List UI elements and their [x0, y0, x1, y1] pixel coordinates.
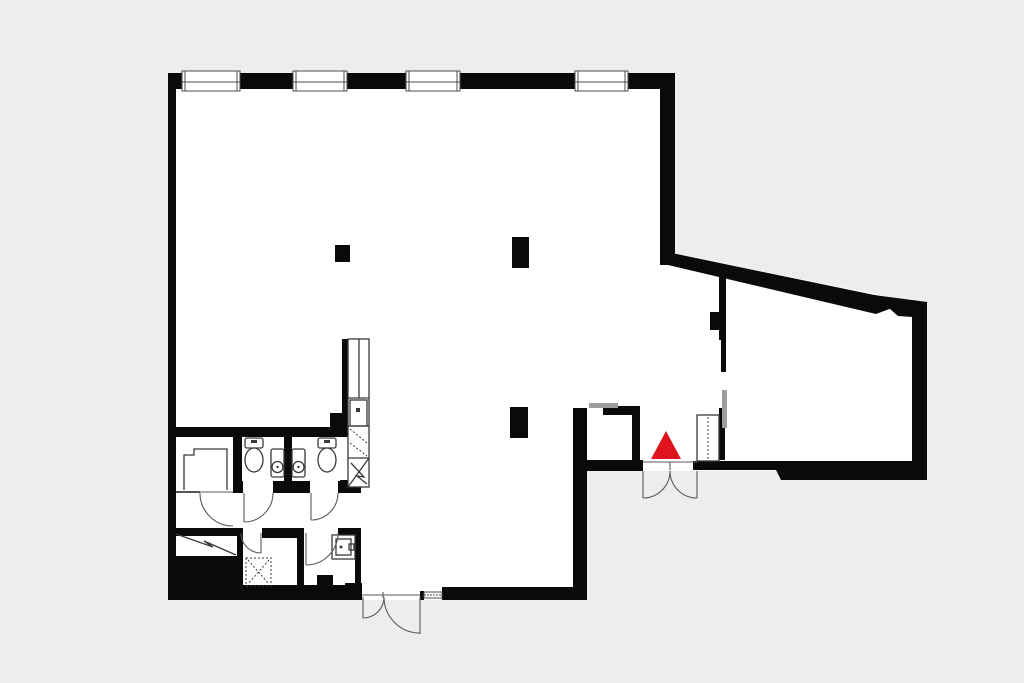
vestibule-cabinet [697, 415, 719, 461]
wall-divider-stub [710, 312, 722, 330]
wall-right-wing-right [912, 302, 927, 480]
window-3 [406, 71, 460, 91]
floor-plan-canvas [0, 0, 1024, 683]
sidelight-window [424, 592, 442, 598]
wash-basin-1 [271, 449, 284, 477]
column-1 [335, 245, 350, 262]
wall-closet-right [632, 408, 640, 462]
wall-left [168, 73, 176, 600]
wash-basin-2 [292, 449, 305, 477]
wall-divider-upper [719, 277, 726, 340]
wall-utility-stub [317, 575, 333, 585]
window-2 [293, 71, 347, 91]
wall-bathroom-top [168, 427, 348, 437]
wall-hall-bottom-seg2 [262, 528, 297, 538]
kitchen-unit [348, 339, 369, 487]
wall-hall-top-pier2 [273, 481, 310, 493]
wall-hall-bottom-seg1 [175, 528, 240, 536]
sliding-door-right-room [722, 390, 727, 428]
window-4 [575, 71, 628, 91]
toilet-1 [245, 438, 263, 472]
wall-utility-divider [297, 528, 304, 585]
building-floor [168, 73, 927, 600]
wall-divider-thin [721, 340, 726, 372]
wall-bottom-band [243, 585, 345, 600]
wall-wc-divider-mid [284, 437, 292, 481]
floor-plan-svg [0, 0, 1024, 683]
wall-hall-top-pier1 [233, 481, 243, 493]
wall-bottom-door-jamb-right [420, 591, 424, 600]
wall-kitchen-step [330, 413, 348, 427]
wall-right-upper [660, 73, 675, 265]
toilet-2 [318, 438, 336, 472]
sliding-door-closet [589, 403, 618, 408]
wall-bottom-door-jamb-left [345, 583, 362, 600]
column-3 [510, 407, 528, 438]
wall-main-right-lower [573, 408, 587, 600]
window-1 [182, 71, 240, 91]
wall-kitchen-strip [342, 339, 348, 415]
wall-bottom-left-mass [168, 556, 243, 600]
wall-bottom-right-of-sidelight [442, 587, 587, 600]
column-2 [512, 237, 529, 268]
